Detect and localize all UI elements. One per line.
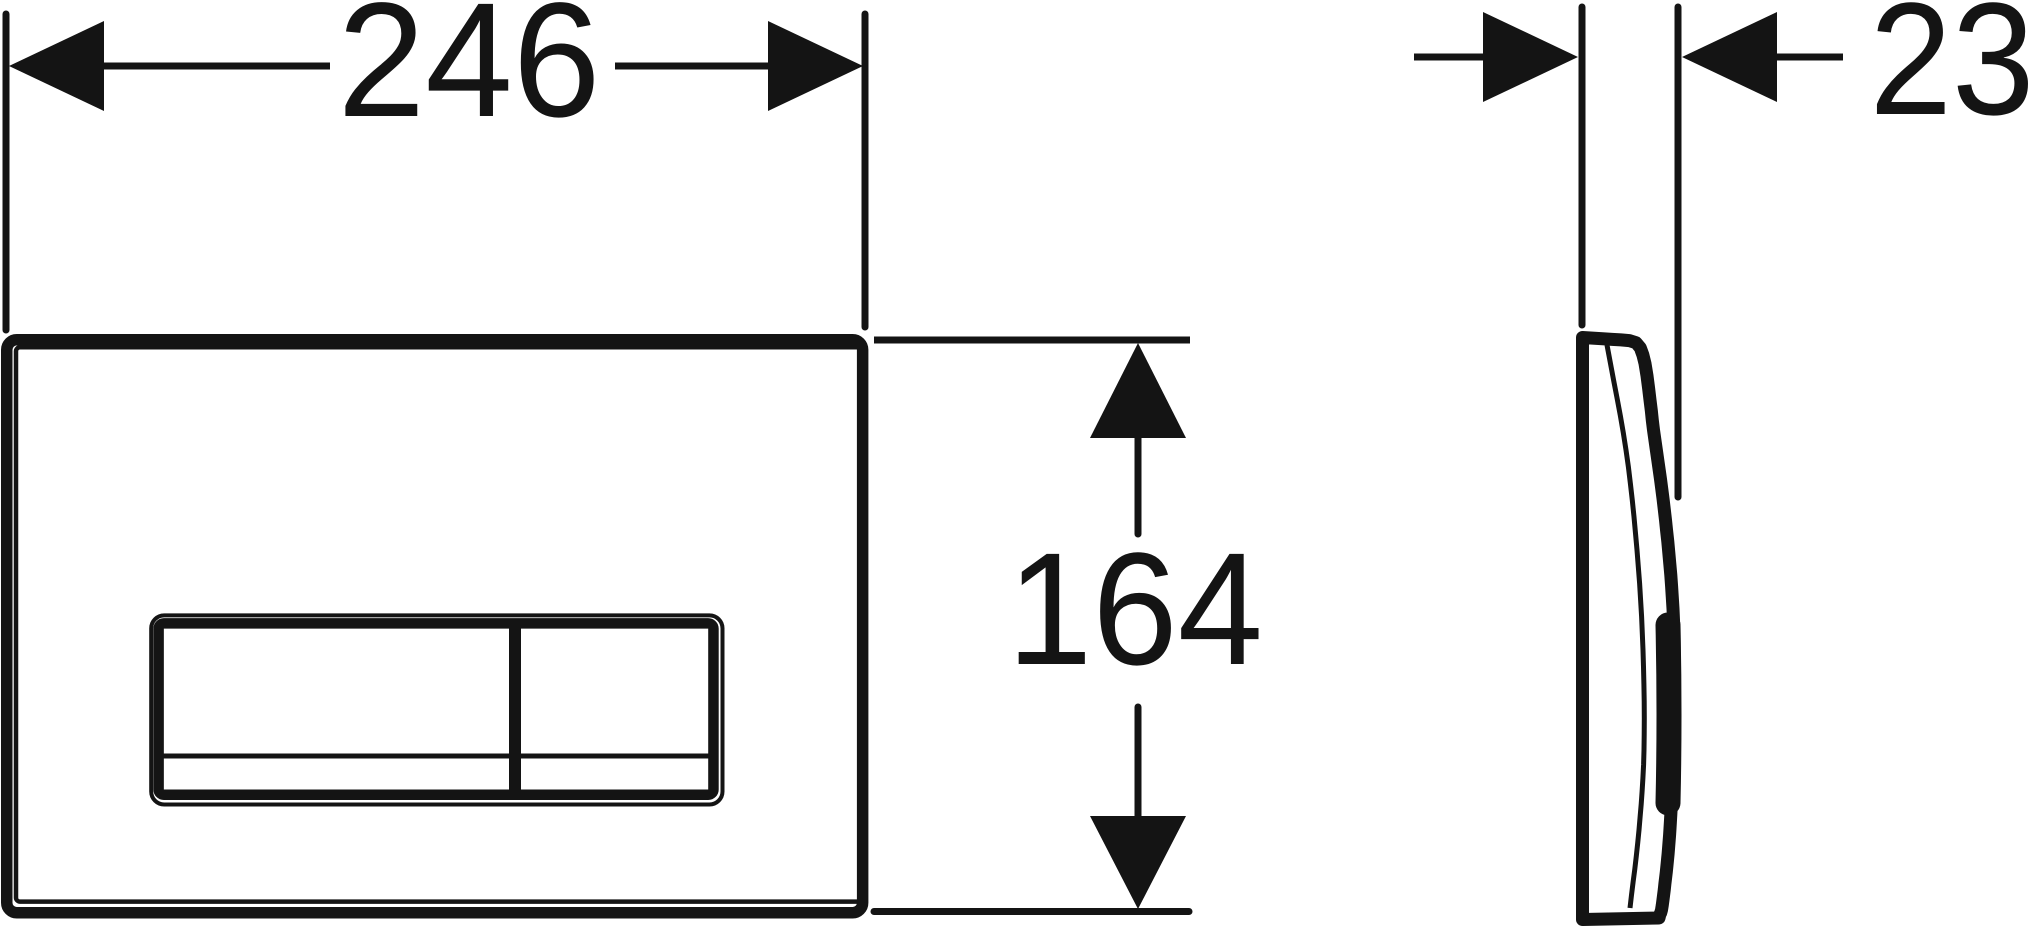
svg-text:164: 164	[1007, 519, 1263, 698]
svg-text:246: 246	[338, 0, 601, 151]
svg-text:23: 23	[1870, 0, 2034, 148]
